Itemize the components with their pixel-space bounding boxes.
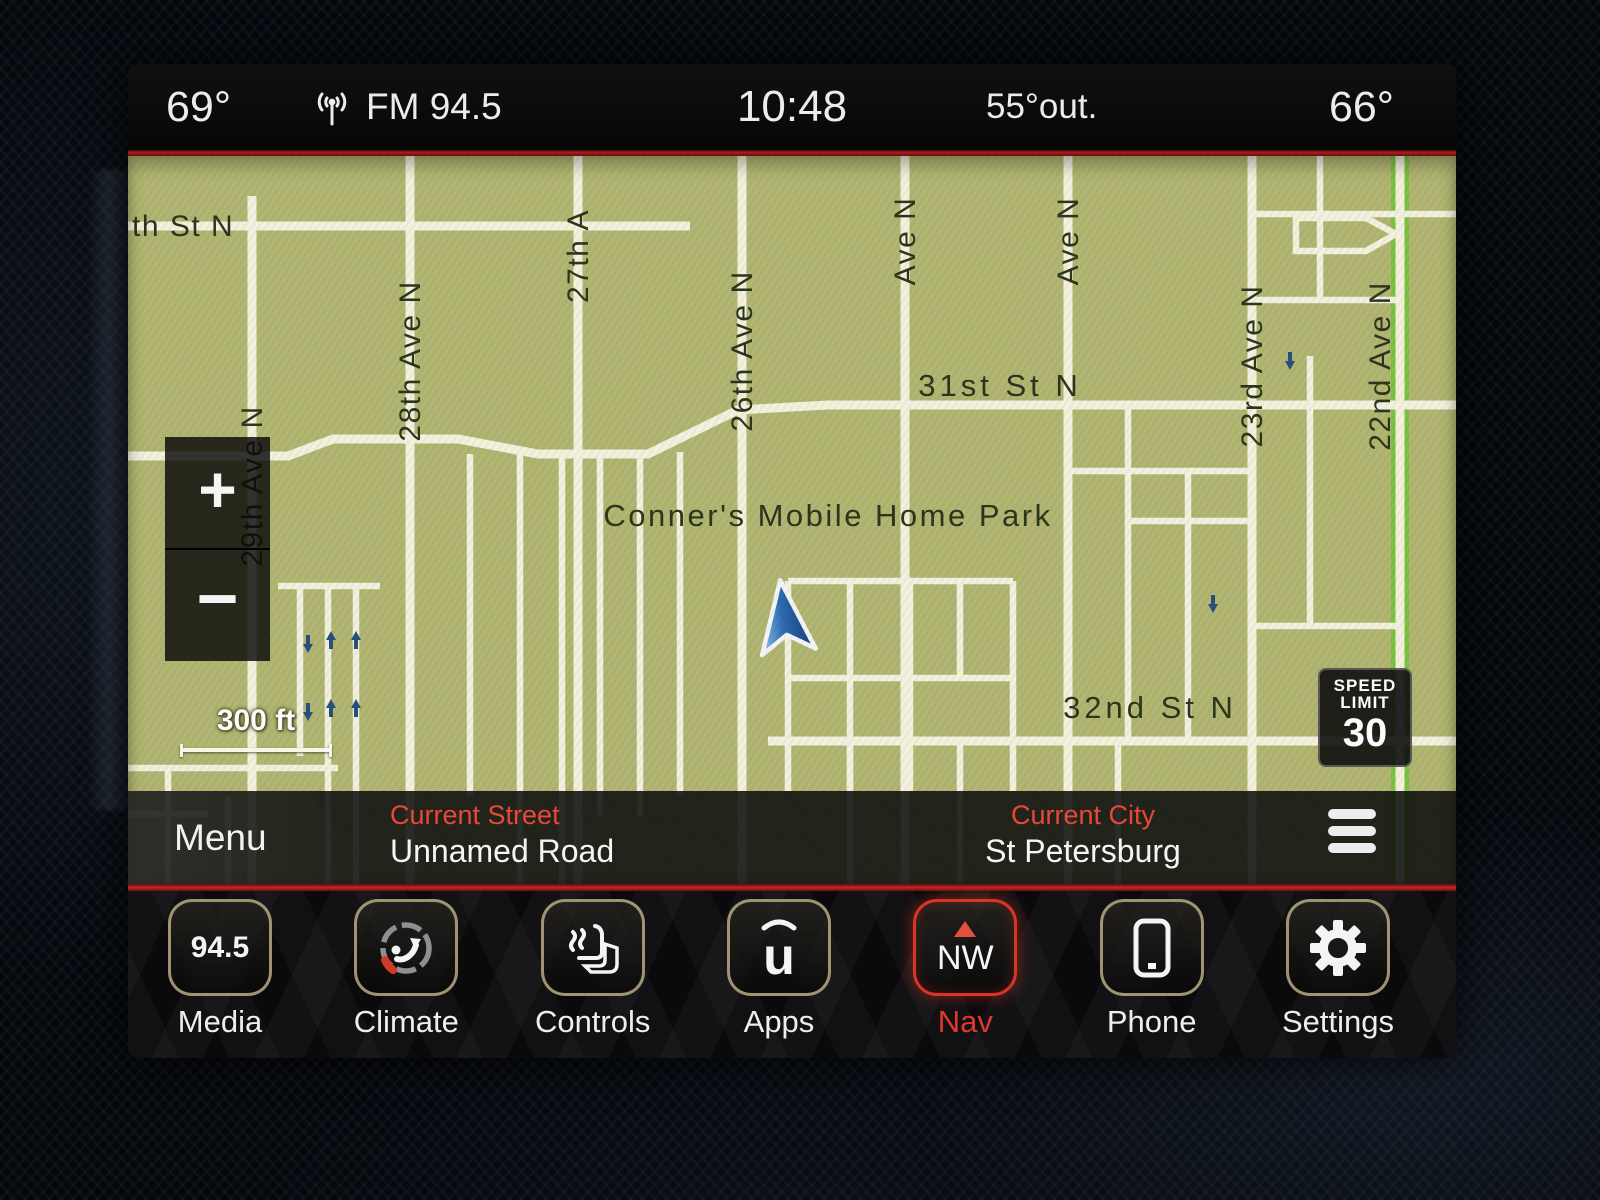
nav-item-settings[interactable]: Settings: [1260, 899, 1416, 1058]
street-label: 32nd St N: [1063, 690, 1237, 725]
bottom-nav-bar: 94.5 Media Climate: [128, 891, 1456, 1058]
passenger-temp: 66°: [1329, 64, 1394, 150]
nav-item-apps[interactable]: u Apps: [701, 899, 857, 1058]
speed-limit-sign: SPEED LIMIT 30: [1318, 668, 1412, 767]
radio-station: FM 94.5: [366, 64, 502, 150]
street-label: Ave N: [1052, 197, 1085, 286]
phone-icon: [1130, 917, 1174, 979]
map-scale-bar: [180, 744, 332, 757]
infotainment-screen: 69° FM 94.5 10:48 55°out. 66°: [128, 64, 1456, 1058]
nav-item-phone[interactable]: Phone: [1074, 899, 1230, 1058]
nav-item-phone-label: Phone: [1074, 1004, 1230, 1040]
driver-temp: 69°: [166, 64, 231, 150]
map-options-menu-icon[interactable]: [1328, 809, 1378, 860]
street-label: 22nd Ave N: [1364, 281, 1397, 451]
uconnect-icon: u: [748, 916, 810, 980]
street-label: th St N: [132, 210, 234, 243]
nav-item-apps-label: Apps: [701, 1004, 857, 1040]
speed-limit-word2: LIMIT: [1320, 694, 1410, 711]
divider-red-bottom: [128, 884, 1456, 891]
info-bar: Menu Current Street Unnamed Road Current…: [128, 791, 1456, 884]
nav-item-climate-label: Climate: [328, 1004, 484, 1040]
current-city-value: St Petersburg: [928, 831, 1238, 871]
gear-icon: [1307, 917, 1369, 979]
street-label: 27th A: [562, 209, 595, 303]
poi-label: Conner's Mobile Home Park: [603, 498, 1052, 533]
speed-limit-word1: SPEED: [1320, 677, 1410, 694]
compass-heading: NW: [937, 941, 994, 975]
svg-text:u: u: [763, 928, 795, 980]
seat-controls-icon: [561, 918, 625, 978]
outside-temp: 55°out.: [986, 64, 1097, 150]
map-scale: 300 ft: [180, 704, 332, 757]
street-label: 28th Ave N: [394, 280, 427, 441]
nav-item-controls-label: Controls: [515, 1004, 671, 1040]
nav-item-nav-label: Nav: [887, 1004, 1043, 1040]
speed-limit-value: 30: [1320, 711, 1410, 755]
menu-button-label[interactable]: Menu: [174, 791, 267, 884]
current-street-block: Current Street Unnamed Road: [390, 799, 614, 871]
radio-signal-icon: [308, 84, 356, 130]
status-bar: 69° FM 94.5 10:48 55°out. 66°: [128, 64, 1456, 150]
nav-item-settings-label: Settings: [1260, 1004, 1416, 1040]
nav-item-nav[interactable]: NW Nav: [887, 899, 1043, 1058]
zoom-out-button[interactable]: −: [165, 550, 270, 661]
map-canvas[interactable]: th St N 29th Ave N 28th Ave N 27th A 26t…: [128, 156, 1456, 884]
nav-item-controls[interactable]: Controls: [515, 899, 671, 1058]
media-frequency: 94.5: [191, 931, 249, 965]
current-street-label: Current Street: [390, 799, 614, 831]
street-label: 26th Ave N: [726, 270, 759, 431]
map-scale-label: 300 ft: [180, 704, 332, 738]
compass-heading-arrow-icon: [954, 921, 976, 937]
bezel-highlight: [88, 170, 130, 810]
current-street-value: Unnamed Road: [390, 831, 614, 871]
current-city-label: Current City: [928, 799, 1238, 831]
climate-dial-icon: [375, 917, 437, 979]
current-city-block: Current City St Petersburg: [928, 799, 1238, 871]
map-area[interactable]: th St N 29th Ave N 28th Ave N 27th A 26t…: [128, 156, 1456, 884]
zoom-control: + −: [165, 437, 270, 661]
street-label: Ave N: [889, 197, 922, 286]
nav-item-media-label: Media: [142, 1004, 298, 1040]
street-label: 23rd Ave N: [1236, 285, 1269, 448]
zoom-in-button[interactable]: +: [165, 437, 270, 550]
street-label: 31st St N: [918, 368, 1082, 403]
nav-item-climate[interactable]: Climate: [328, 899, 484, 1058]
nav-item-media[interactable]: 94.5 Media: [142, 899, 298, 1058]
clock: 10:48: [737, 64, 847, 150]
